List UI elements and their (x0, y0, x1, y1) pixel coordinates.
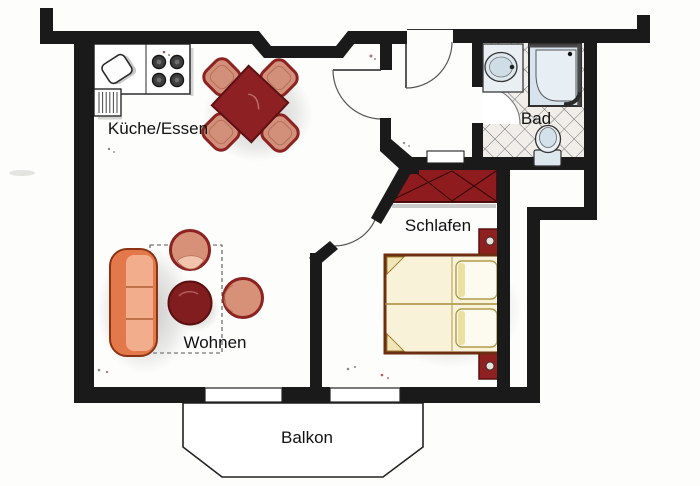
armchair-icon (224, 279, 263, 318)
armchair-icon (171, 231, 210, 270)
bedroom-window (330, 388, 400, 402)
label-bathroom: Bad (521, 109, 551, 128)
radiator-icon (94, 89, 121, 116)
washbasin-icon (483, 44, 523, 92)
toilet-icon (534, 126, 561, 167)
label-kitchen-dining: Küche/Essen (108, 119, 208, 138)
label-balcony: Balkon (281, 428, 333, 447)
dining-set (199, 55, 313, 162)
balcony-door (205, 388, 282, 402)
shower-icon (529, 44, 581, 106)
scan-smudge (9, 170, 35, 176)
wall-niche (427, 151, 464, 163)
floor-plan: Küche/Essen Bad Schlafen Wohnen Balkon (0, 0, 700, 486)
label-living: Wohnen (183, 333, 246, 352)
sofa-icon (110, 249, 157, 356)
label-bedroom: Schlafen (405, 216, 471, 235)
